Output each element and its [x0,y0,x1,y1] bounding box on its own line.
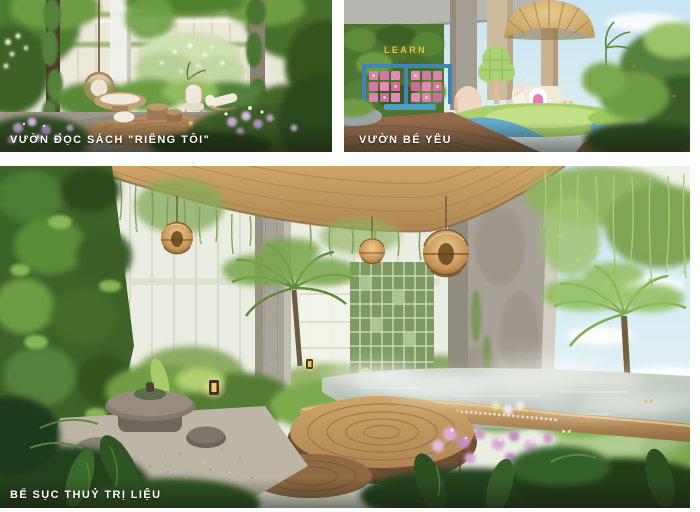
learn-sign-text: LEARN [384,45,427,55]
panel-kids-garden: LEARN VƯỜN BÉ YÊU [344,0,690,152]
caption-reading-garden: VƯỜN ĐỌC SÁCH "RIÊNG TÔI" [10,135,210,146]
caption-hydrotherapy-pool: BỂ SỤC THUỶ TRỊ LIỆU [10,490,161,501]
panel-reading-garden: VƯỜN ĐỌC SÁCH "RIÊNG TÔI" [0,0,332,152]
kids-garden-illustration [344,0,690,152]
reading-garden-illustration [0,0,332,152]
garden-collage: VƯỜN ĐỌC SÁCH "RIÊNG TÔI" [0,0,700,512]
glass-block-screen [350,262,434,378]
panel-hydrotherapy-pool: BỂ SỤC THUỶ TRỊ LIỆU [0,166,690,508]
hydrotherapy-pool-illustration [0,166,690,508]
caption-kids-garden: VƯỜN BÉ YÊU [359,135,452,146]
